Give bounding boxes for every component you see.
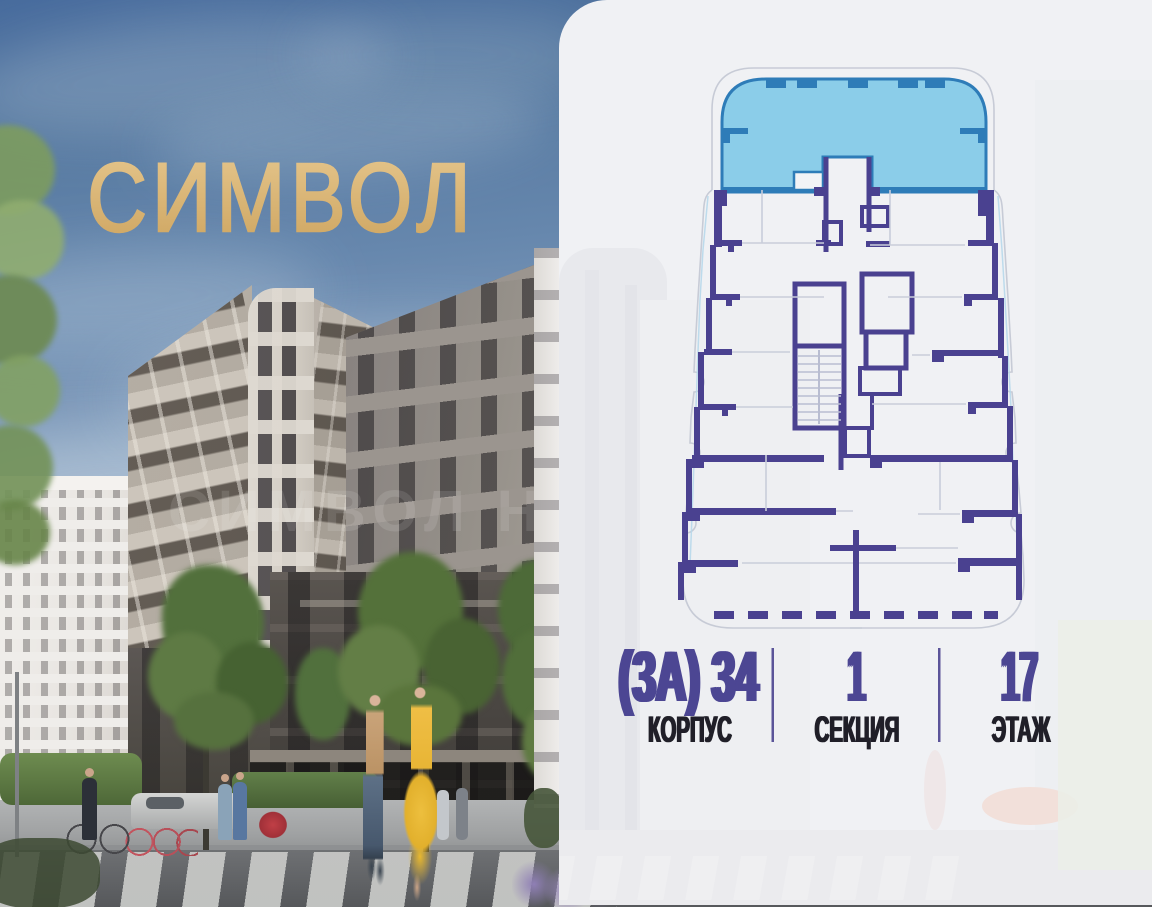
svg-text:17: 17 [1003, 637, 1040, 716]
svg-text:(3А) 34: (3А) 34 [621, 638, 761, 717]
svg-text:КОРПУС: КОРПУС [649, 710, 733, 751]
svg-text:СЕКЦИЯ: СЕКЦИЯ [815, 710, 900, 751]
svg-text:СИМВОЛ: СИМВОЛ [87, 144, 476, 250]
svg-text:1: 1 [849, 637, 868, 716]
svg-text:ЭТАЖ: ЭТАЖ [992, 710, 1051, 751]
